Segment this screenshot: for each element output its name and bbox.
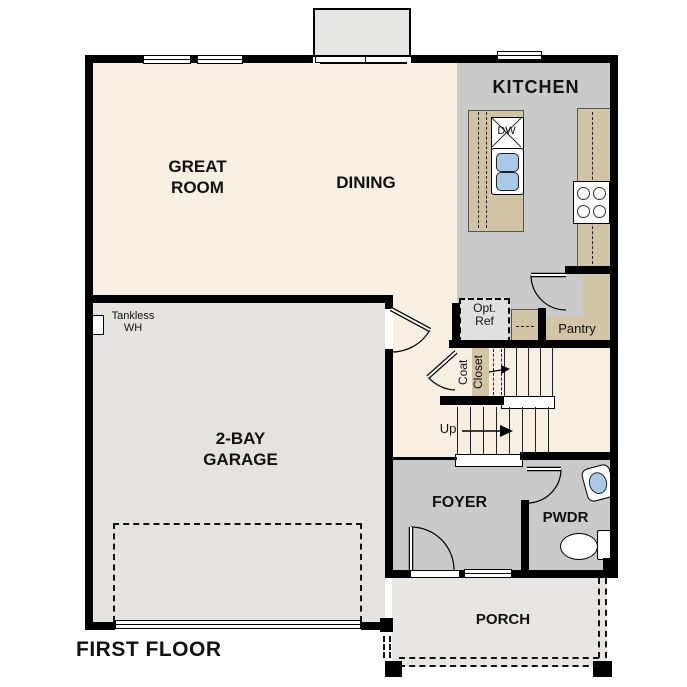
window-great-room (197, 55, 243, 64)
wall-garage-right (385, 295, 393, 309)
stove-burner (577, 187, 590, 200)
stove-burner (593, 205, 606, 218)
window-front-sidelight (464, 569, 512, 578)
front-door-opening (411, 570, 459, 578)
powder-sink-basin (586, 470, 609, 496)
bump-out (313, 8, 411, 57)
sink-basin (496, 172, 519, 191)
window-great-room (143, 55, 191, 64)
sliding-door-line (320, 62, 407, 64)
label-tankless-wh: Tankless WH (102, 310, 164, 335)
label-opt-ref: Opt. Ref (460, 302, 509, 329)
wall-pantry-left (538, 308, 546, 348)
stove-burner (593, 187, 606, 200)
window-kitchen (497, 51, 542, 60)
label-powder: PWDR (528, 509, 603, 528)
label-kitchen: KITCHEN (471, 76, 601, 99)
stairs-upper-flight (504, 348, 553, 397)
toilet-bowl-icon (560, 533, 598, 560)
label-dishwasher: DW (493, 125, 520, 137)
room-foyer (393, 460, 521, 570)
garage-door (115, 620, 361, 629)
label-pantry: Pantry (546, 322, 608, 337)
wall-right (610, 55, 618, 578)
stove-burner (577, 205, 590, 218)
wall-pantry-top (565, 266, 610, 274)
label-closet: Closet (472, 348, 489, 396)
wall-garage-right (385, 349, 393, 578)
stairs-base (455, 454, 523, 467)
porch-dashed-edge-right (598, 578, 607, 658)
label-first-floor: FIRST FLOOR (76, 637, 276, 663)
sink-basin (496, 153, 519, 172)
counter-dash-line (516, 326, 534, 327)
garage-bay-dashed-outline (113, 523, 362, 622)
stove-icon (573, 181, 610, 224)
label-up: Up (436, 422, 460, 437)
toilet-tank-icon (597, 530, 611, 560)
floor-plan: KITCHEN GREAT ROOM DINING 2-BAY GARAGE F… (0, 0, 687, 687)
porch-post (380, 618, 393, 632)
wall-coat-bottom (440, 396, 504, 405)
porch-dashed-edge-left (383, 636, 391, 658)
wall-powder-top (520, 452, 610, 460)
wall-garage-top (85, 295, 393, 303)
line-foyer-top (385, 457, 457, 460)
island-dash-line (478, 112, 479, 228)
porch-dashed-edge-bottom (399, 657, 599, 667)
wall-garage-bottom (85, 622, 115, 630)
island-dash-line (486, 112, 487, 228)
label-foyer: FOYER (417, 493, 502, 513)
wall-left (85, 55, 93, 630)
label-garage: 2-BAY GARAGE (178, 428, 303, 471)
label-great-room: GREAT ROOM (135, 156, 260, 199)
wall-stairs-top (449, 340, 610, 348)
wall-ref-left (452, 303, 460, 346)
closet-dash-line (501, 349, 502, 395)
label-porch: PORCH (458, 611, 548, 630)
closet-dash-line (493, 349, 494, 395)
stairs-lower-flight (457, 407, 553, 455)
label-dining: DINING (320, 172, 412, 193)
porch-post (603, 558, 615, 577)
